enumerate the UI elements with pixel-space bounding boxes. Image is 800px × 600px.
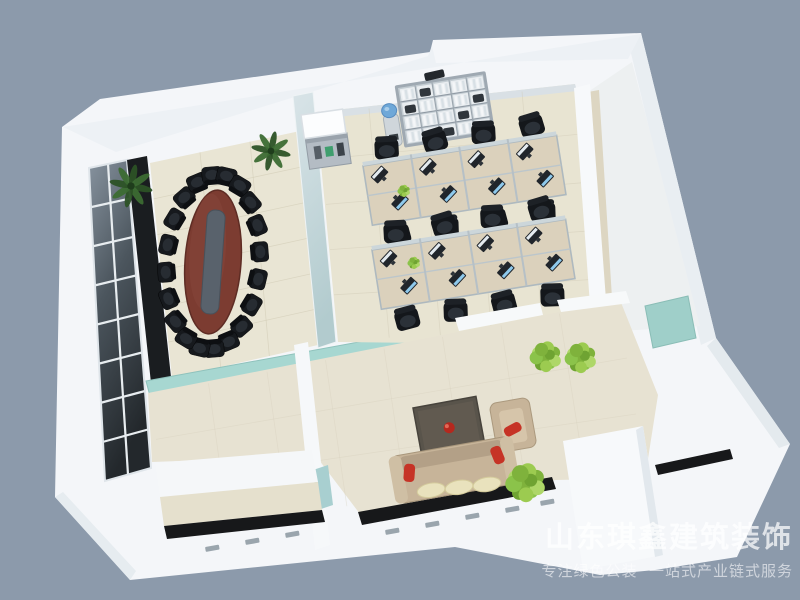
cart-white-screen [301,109,346,139]
office-chair [383,219,408,243]
conference-chair [249,241,269,262]
sofa-red-pillow-left [403,464,415,483]
floorplan-3d-scene [0,0,800,600]
presentation-cart [301,109,351,169]
floorplan-render: 山东琪鑫建筑装饰 专注绿色公装 一站式产业链式服务 [0,0,800,600]
office-chair [480,204,505,228]
teal-accent-panel [645,296,696,348]
office-chair [471,120,496,144]
conference-chair [157,261,177,282]
office-chair [374,135,399,159]
